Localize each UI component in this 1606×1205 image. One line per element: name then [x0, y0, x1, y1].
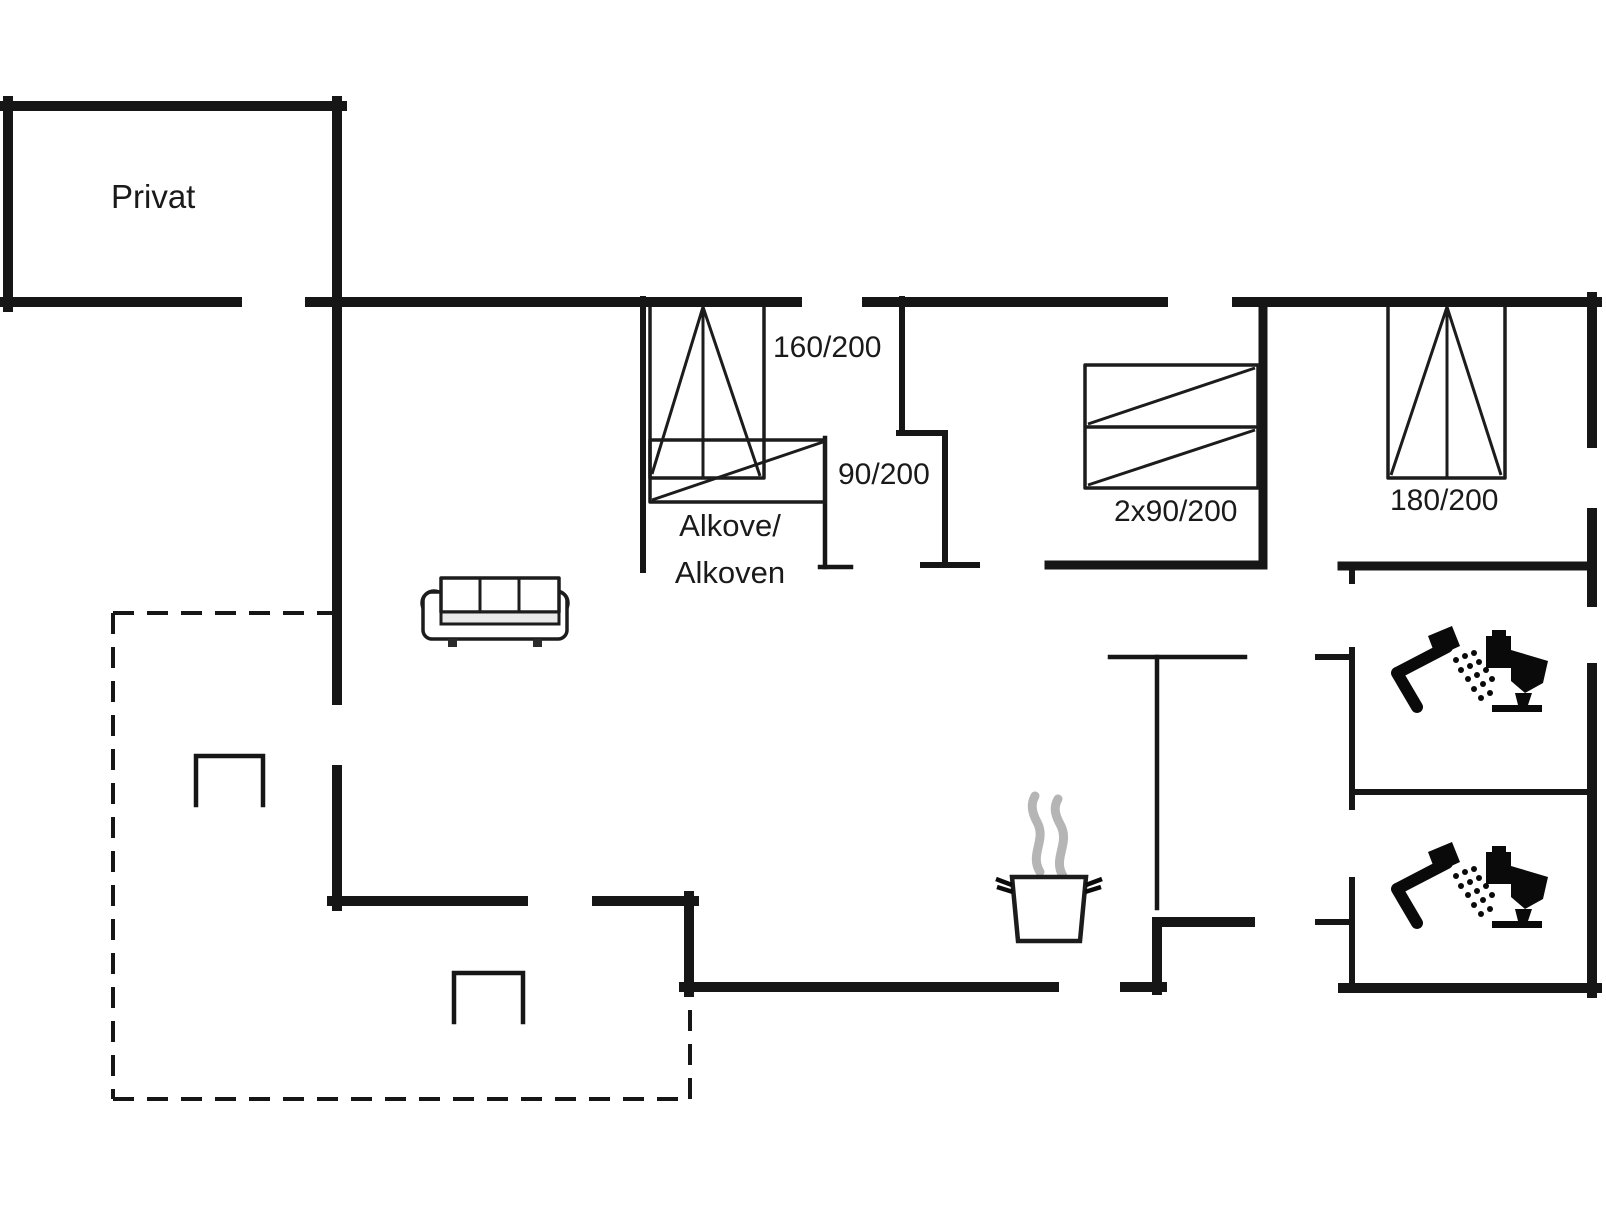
- pot-body: [1012, 877, 1086, 941]
- plan-background: [0, 0, 1606, 1205]
- sofa-icon: [422, 578, 568, 647]
- room-label-alcove-line1: Alkove/: [679, 508, 781, 543]
- floor-plan: Privat 160/200 90/200 Alkove/ Alkoven 2x…: [0, 0, 1606, 1205]
- sofa-leg-right: [533, 639, 542, 647]
- sofa-seat-front: [441, 612, 559, 624]
- sofa-back: [441, 578, 559, 612]
- bed-size-label-bunk: 2x90/200: [1114, 495, 1237, 528]
- floor-plan-image: Privat 160/200 90/200 Alkove/ Alkoven 2x…: [0, 0, 1606, 1205]
- sofa-leg-left: [448, 639, 457, 647]
- room-label-private: Privat: [111, 178, 195, 215]
- room-label-alcove-line2: Alkoven: [675, 555, 785, 590]
- bed-size-label-90: 90/200: [838, 458, 930, 491]
- bed-size-label-180: 180/200: [1390, 484, 1498, 517]
- bed-size-label-160: 160/200: [773, 331, 881, 364]
